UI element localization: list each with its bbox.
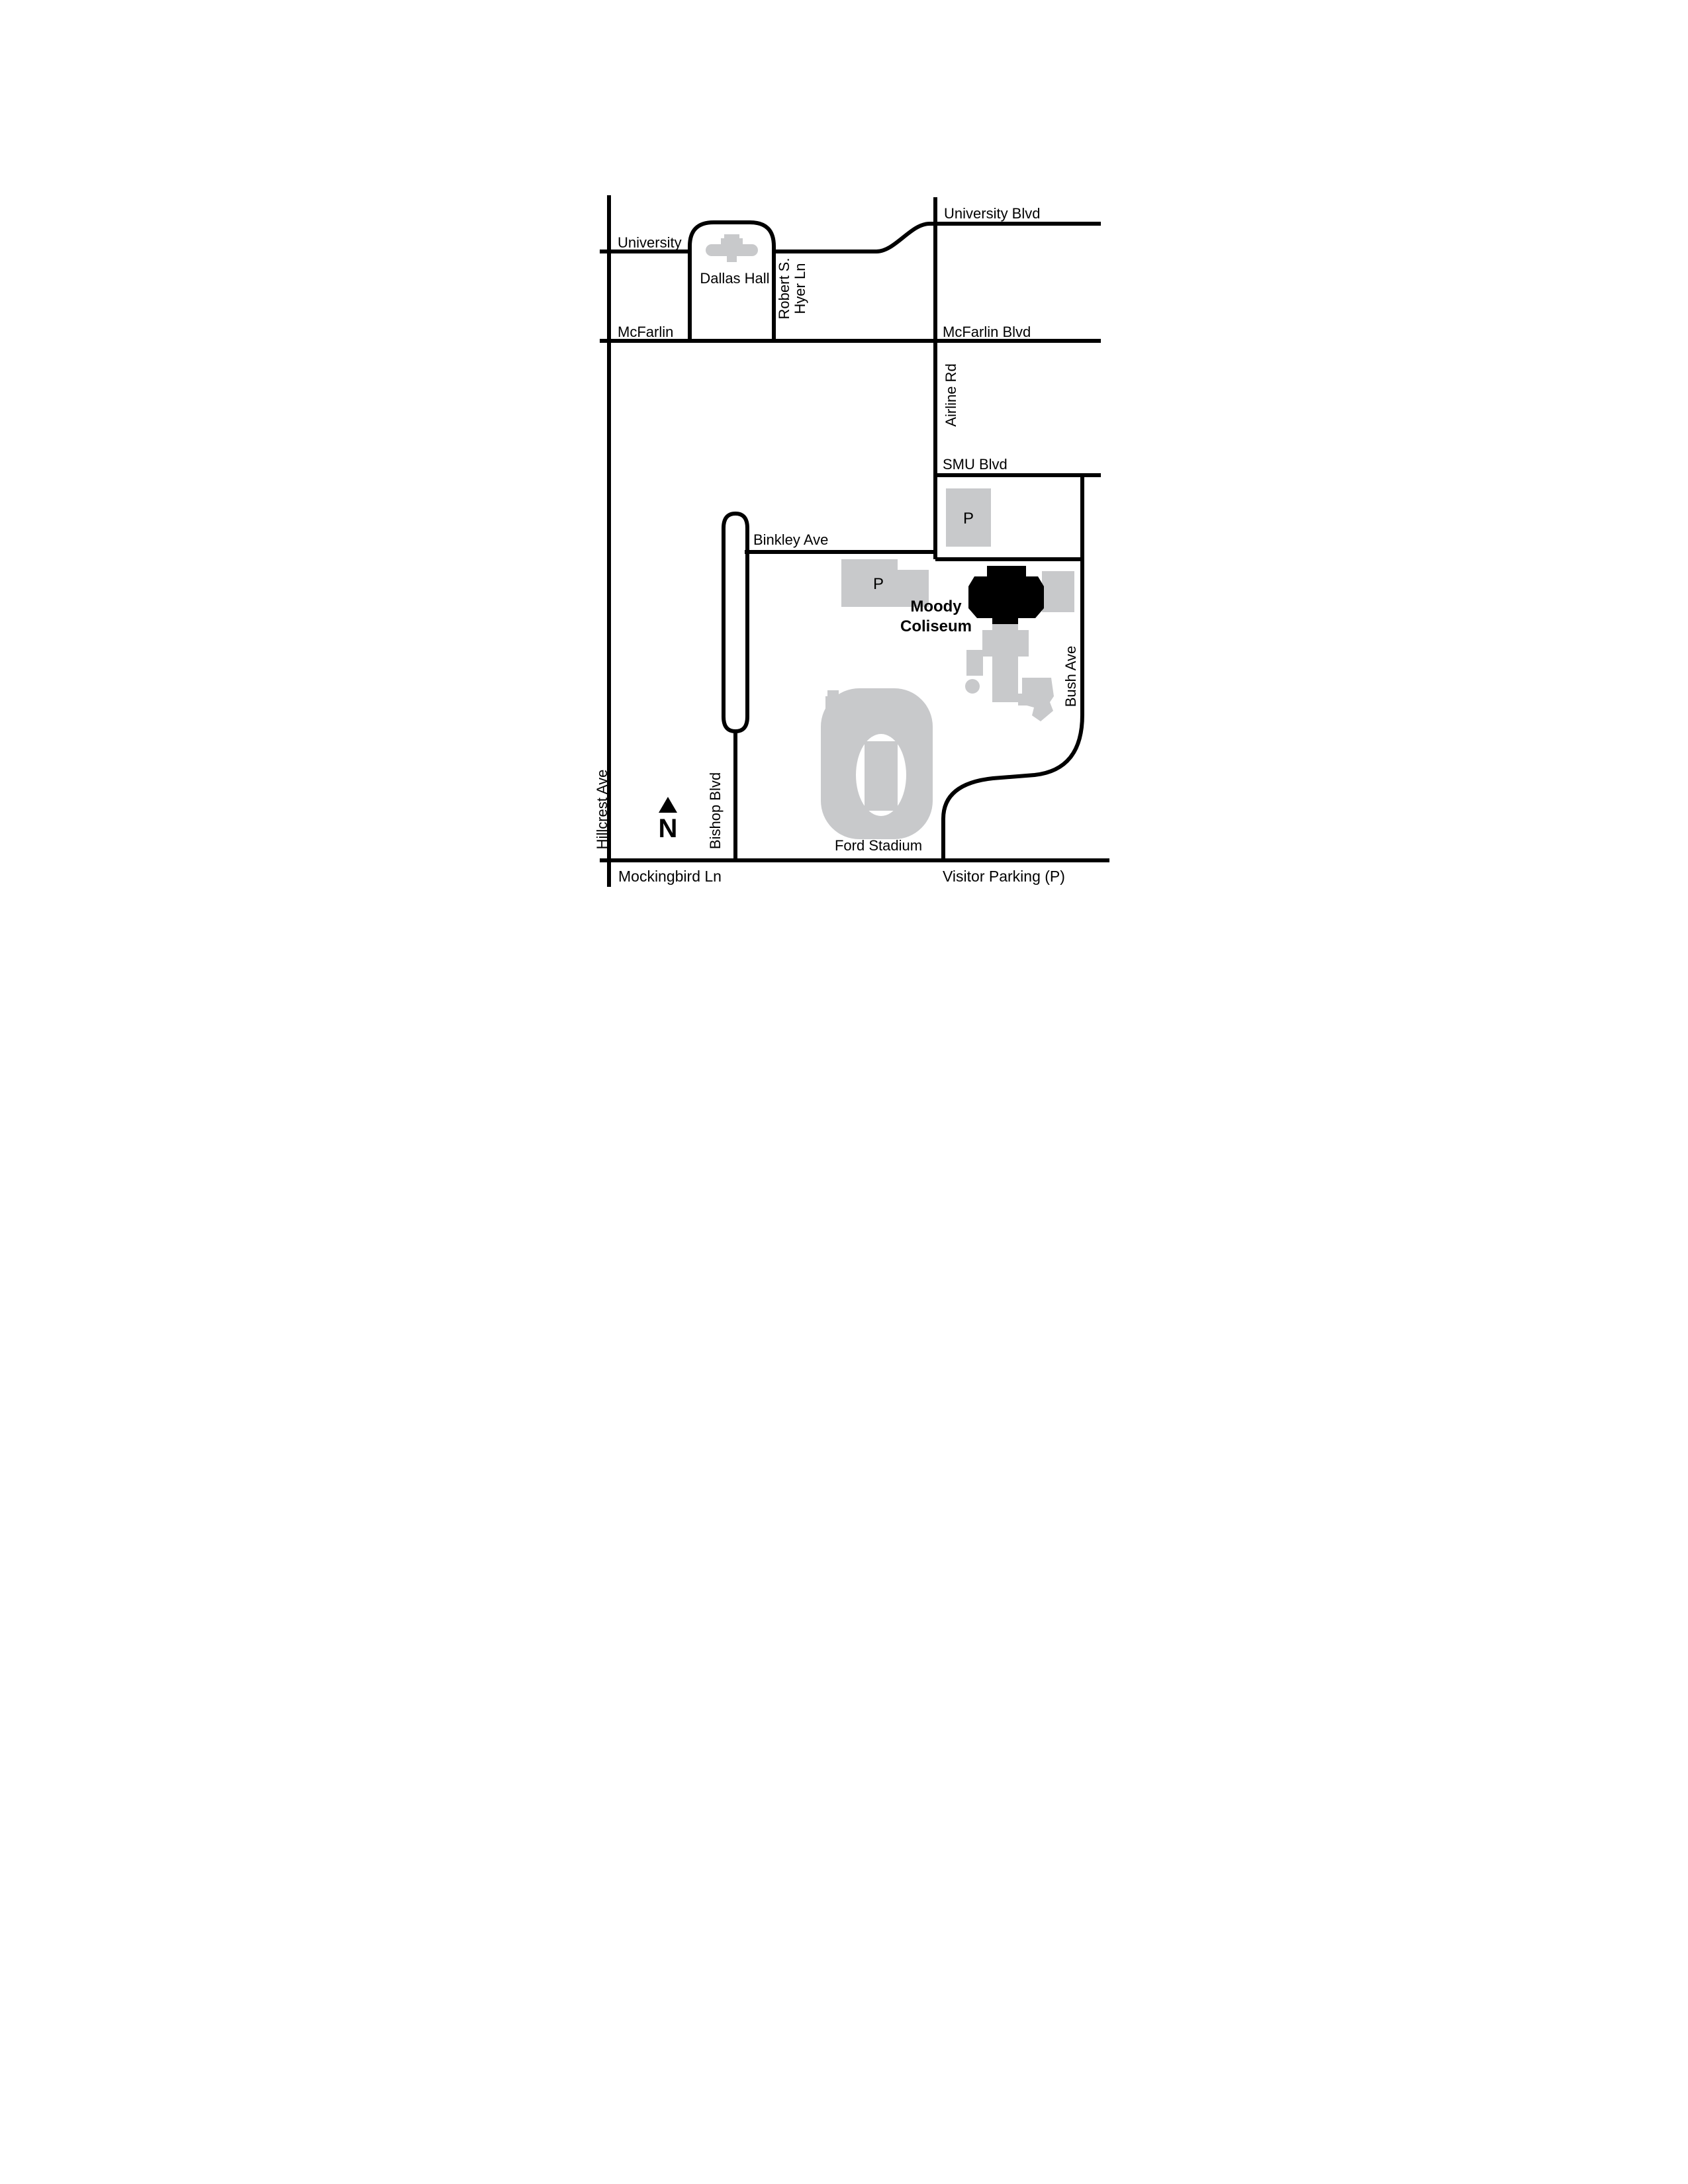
legend-label-visitor-parking: Visitor Parking (P): [943, 868, 1065, 885]
map-background: [422, 0, 1266, 1092]
complex-west-wing: [966, 650, 983, 676]
street-label-mockingbird-ln: Mockingbird Ln: [618, 868, 722, 885]
building-label-dallas-hall: Dallas Hall: [700, 270, 769, 287]
building-east-of-moody: [1042, 571, 1074, 612]
map-page: University Blvd University Dallas Hall R…: [422, 0, 1266, 1092]
complex-round-structure: [965, 679, 980, 694]
building-label-moody-line1: Moody: [910, 598, 962, 615]
street-label-hillcrest-ave: Hillcrest Ave: [594, 770, 610, 850]
street-label-robert-s: Robert S.: [776, 258, 792, 320]
parking-marker-binkley: P: [872, 575, 883, 593]
street-label-airline-rd: Airline Rd: [943, 363, 959, 426]
street-label-bush-ave: Bush Ave: [1062, 646, 1079, 707]
dallas-hall-center: [724, 234, 739, 248]
dallas-hall-south-tab: [727, 256, 737, 262]
street-label-binkley-ave: Binkley Ave: [753, 531, 828, 548]
parking-marker-smu: P: [962, 510, 973, 527]
building-label-moody-line2: Coliseum: [900, 617, 971, 635]
ford-stadium-field: [865, 741, 898, 811]
street-label-smu-blvd: SMU Blvd: [943, 456, 1008, 473]
street-label-bishop-blvd: Bishop Blvd: [707, 772, 724, 849]
street-label-mcfarlin: McFarlin: [618, 324, 673, 340]
street-label-university-blvd: University Blvd: [944, 205, 1040, 222]
campus-map: University Blvd University Dallas Hall R…: [422, 0, 1266, 1092]
street-label-hyer-ln: Hyer Ln: [792, 263, 808, 314]
street-label-mcfarlin-blvd: McFarlin Blvd: [943, 324, 1031, 340]
street-label-university: University: [618, 234, 682, 251]
building-label-ford-stadium: Ford Stadium: [834, 837, 921, 854]
complex-wide-block: [982, 630, 1029, 657]
north-label: N: [658, 814, 677, 843]
